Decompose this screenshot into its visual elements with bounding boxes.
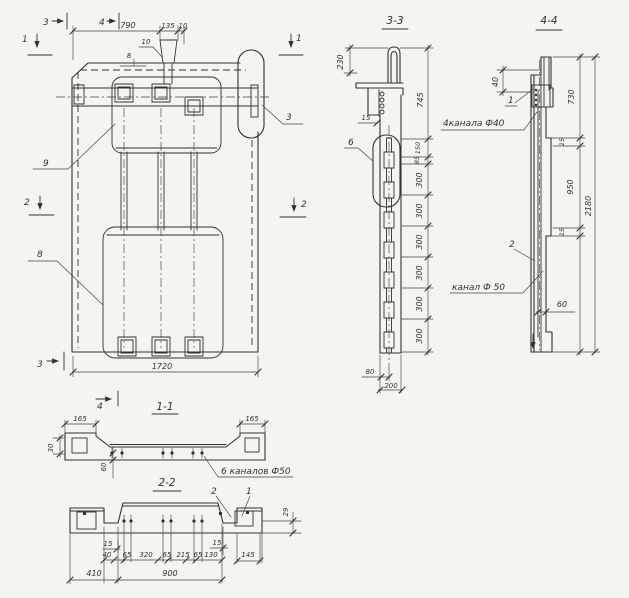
callout-1: 1 <box>246 487 252 497</box>
dim-230: 230 <box>336 54 345 69</box>
right-void-2-2 <box>235 511 253 526</box>
dim-320: 320 <box>139 551 153 559</box>
anchor-hook-icon <box>380 110 384 114</box>
leader-10-line <box>139 47 162 57</box>
dim-790: 790 <box>120 21 135 30</box>
section-1-1: 1-1 165 165 30 60 6 каналов Ф50 <box>47 401 293 478</box>
dim-15-bottom: 15 <box>558 228 566 236</box>
panel-hidden-edges <box>78 70 252 348</box>
main-view: 790 135 10 10 8 1720 3 4 1 1 2 2 <box>22 13 307 412</box>
anchor-hook-icon <box>380 98 384 102</box>
dim-300: 300 <box>415 265 424 280</box>
section-2-2-profile <box>70 503 262 533</box>
dim-150: 150 <box>414 142 422 154</box>
callout-9: 9 <box>43 159 49 169</box>
anchor-hook-icon <box>380 92 384 96</box>
drawing-sheet: 790 135 10 10 8 1720 3 4 1 1 2 2 <box>0 0 629 598</box>
callout-1: 1 <box>508 96 514 106</box>
dim-900: 900 <box>162 569 177 578</box>
left-void <box>72 438 87 453</box>
dim-15: 15 <box>362 114 371 122</box>
dim-60: 60 <box>100 462 108 471</box>
channel-marks-1-1 <box>110 448 203 458</box>
dim-730: 730 <box>567 89 576 104</box>
strand-lines <box>121 152 197 230</box>
dim-950: 950 <box>566 179 575 194</box>
left-void-2-2 <box>77 512 96 529</box>
dim-60: 60 <box>557 300 567 309</box>
cut-4-bottom: 4 <box>97 402 103 412</box>
callout-2: 2 <box>509 240 515 250</box>
dim-65b: 65 <box>163 551 172 559</box>
dim-745: 745 <box>416 92 425 107</box>
dim-145: 145 <box>241 551 255 559</box>
dim-8: 8 <box>127 52 132 60</box>
dim-300: 300 <box>415 296 424 311</box>
rebar-dot-icon <box>535 99 537 101</box>
lower-recess <box>103 227 223 358</box>
rebar-dot-icon <box>83 512 86 515</box>
callout-3-leader <box>262 105 303 124</box>
rebar-dot-icon <box>535 94 537 96</box>
callout-6-leader <box>344 148 373 161</box>
dim-80: 80 <box>366 368 375 376</box>
section-2-2: 2-2 2 1 15 15 29 40 65 320 65 <box>67 477 301 584</box>
rebar-dot-icon <box>535 104 537 106</box>
callout-3: 3 <box>286 113 292 123</box>
dim-40: 40 <box>491 77 500 87</box>
cut-3-top: 3 <box>43 18 49 28</box>
dim-65c: 65 <box>194 551 203 559</box>
dim-15-left: 15 <box>104 540 113 548</box>
callout-2: 2 <box>211 487 217 497</box>
dim-215: 215 <box>176 551 190 559</box>
cut-2-left: 2 <box>24 198 30 208</box>
dim-2180: 2180 <box>584 196 593 216</box>
dim-165-left: 165 <box>73 415 87 423</box>
right-void <box>245 438 259 452</box>
top-beam <box>72 40 258 106</box>
cut-1-right: 1 <box>296 34 302 44</box>
rebar-dot-icon <box>246 511 249 514</box>
dim-410: 410 <box>86 569 101 578</box>
callout-2-leader <box>216 496 231 517</box>
dim-200: 200 <box>384 382 398 390</box>
feet-blocks <box>118 337 203 356</box>
anchor-hook-icon <box>380 104 384 108</box>
dim-1720: 1720 <box>152 362 172 371</box>
dim-10: 10 <box>179 22 188 30</box>
rebar-dot-icon <box>535 89 537 91</box>
dim-230-lines <box>344 45 388 76</box>
technical-drawing: 790 135 10 10 8 1720 3 4 1 1 2 2 <box>0 0 629 598</box>
dims-1-1-ticks <box>57 421 268 463</box>
callout-6: 6 <box>348 138 354 148</box>
dim-300: 300 <box>415 328 424 343</box>
section-4-4: 4-4 40 1 4канала Ф40 2 канал Ф 50 60 730 <box>441 15 600 355</box>
dim-300: 300 <box>415 234 424 249</box>
dim-15-top: 15 <box>558 138 566 146</box>
dim-165-right: 165 <box>245 415 259 423</box>
dim-30: 30 <box>47 443 55 452</box>
dim-130: 130 <box>204 551 218 559</box>
label-6-channels: 6 каналов Ф50 <box>221 467 291 477</box>
dim-300: 300 <box>415 172 424 187</box>
capsule-bar <box>251 85 258 117</box>
label-channel-50: канал Ф 50 <box>452 283 505 293</box>
cut-3-bottom: 3 <box>37 360 43 370</box>
rebar-dot-icon <box>219 512 222 515</box>
cut-1-left: 1 <box>22 35 28 45</box>
section-2-2-title: 2-2 <box>158 477 175 489</box>
callout-8: 8 <box>37 250 43 260</box>
section-3-3-title: 3-3 <box>386 15 403 27</box>
cut-2-right: 2 <box>301 200 307 210</box>
dim-29: 29 <box>282 507 290 516</box>
callout-8-leader <box>28 261 103 305</box>
callout-2-leader <box>514 249 535 261</box>
dim-40: 40 <box>103 551 112 559</box>
leader-10: 10 <box>142 38 151 46</box>
anchor-plates <box>74 84 203 115</box>
section-3-3: 3-3 230 15 6 745 150 85 300 300 300 300 … <box>336 15 433 393</box>
dim-135: 135 <box>161 22 175 30</box>
section-4-4-title: 4-4 <box>540 15 557 27</box>
dim-65a: 65 <box>123 551 132 559</box>
cut-4-top: 4 <box>99 18 105 28</box>
dim-15-right: 15 <box>213 539 222 547</box>
section-1-1-profile <box>65 433 265 460</box>
dim-300: 300 <box>415 203 424 218</box>
section-3-3-profile <box>356 47 403 353</box>
label-channels-40: 4канала Ф40 <box>443 119 505 129</box>
dim-85: 85 <box>413 156 421 164</box>
section-1-1-title: 1-1 <box>156 401 173 413</box>
